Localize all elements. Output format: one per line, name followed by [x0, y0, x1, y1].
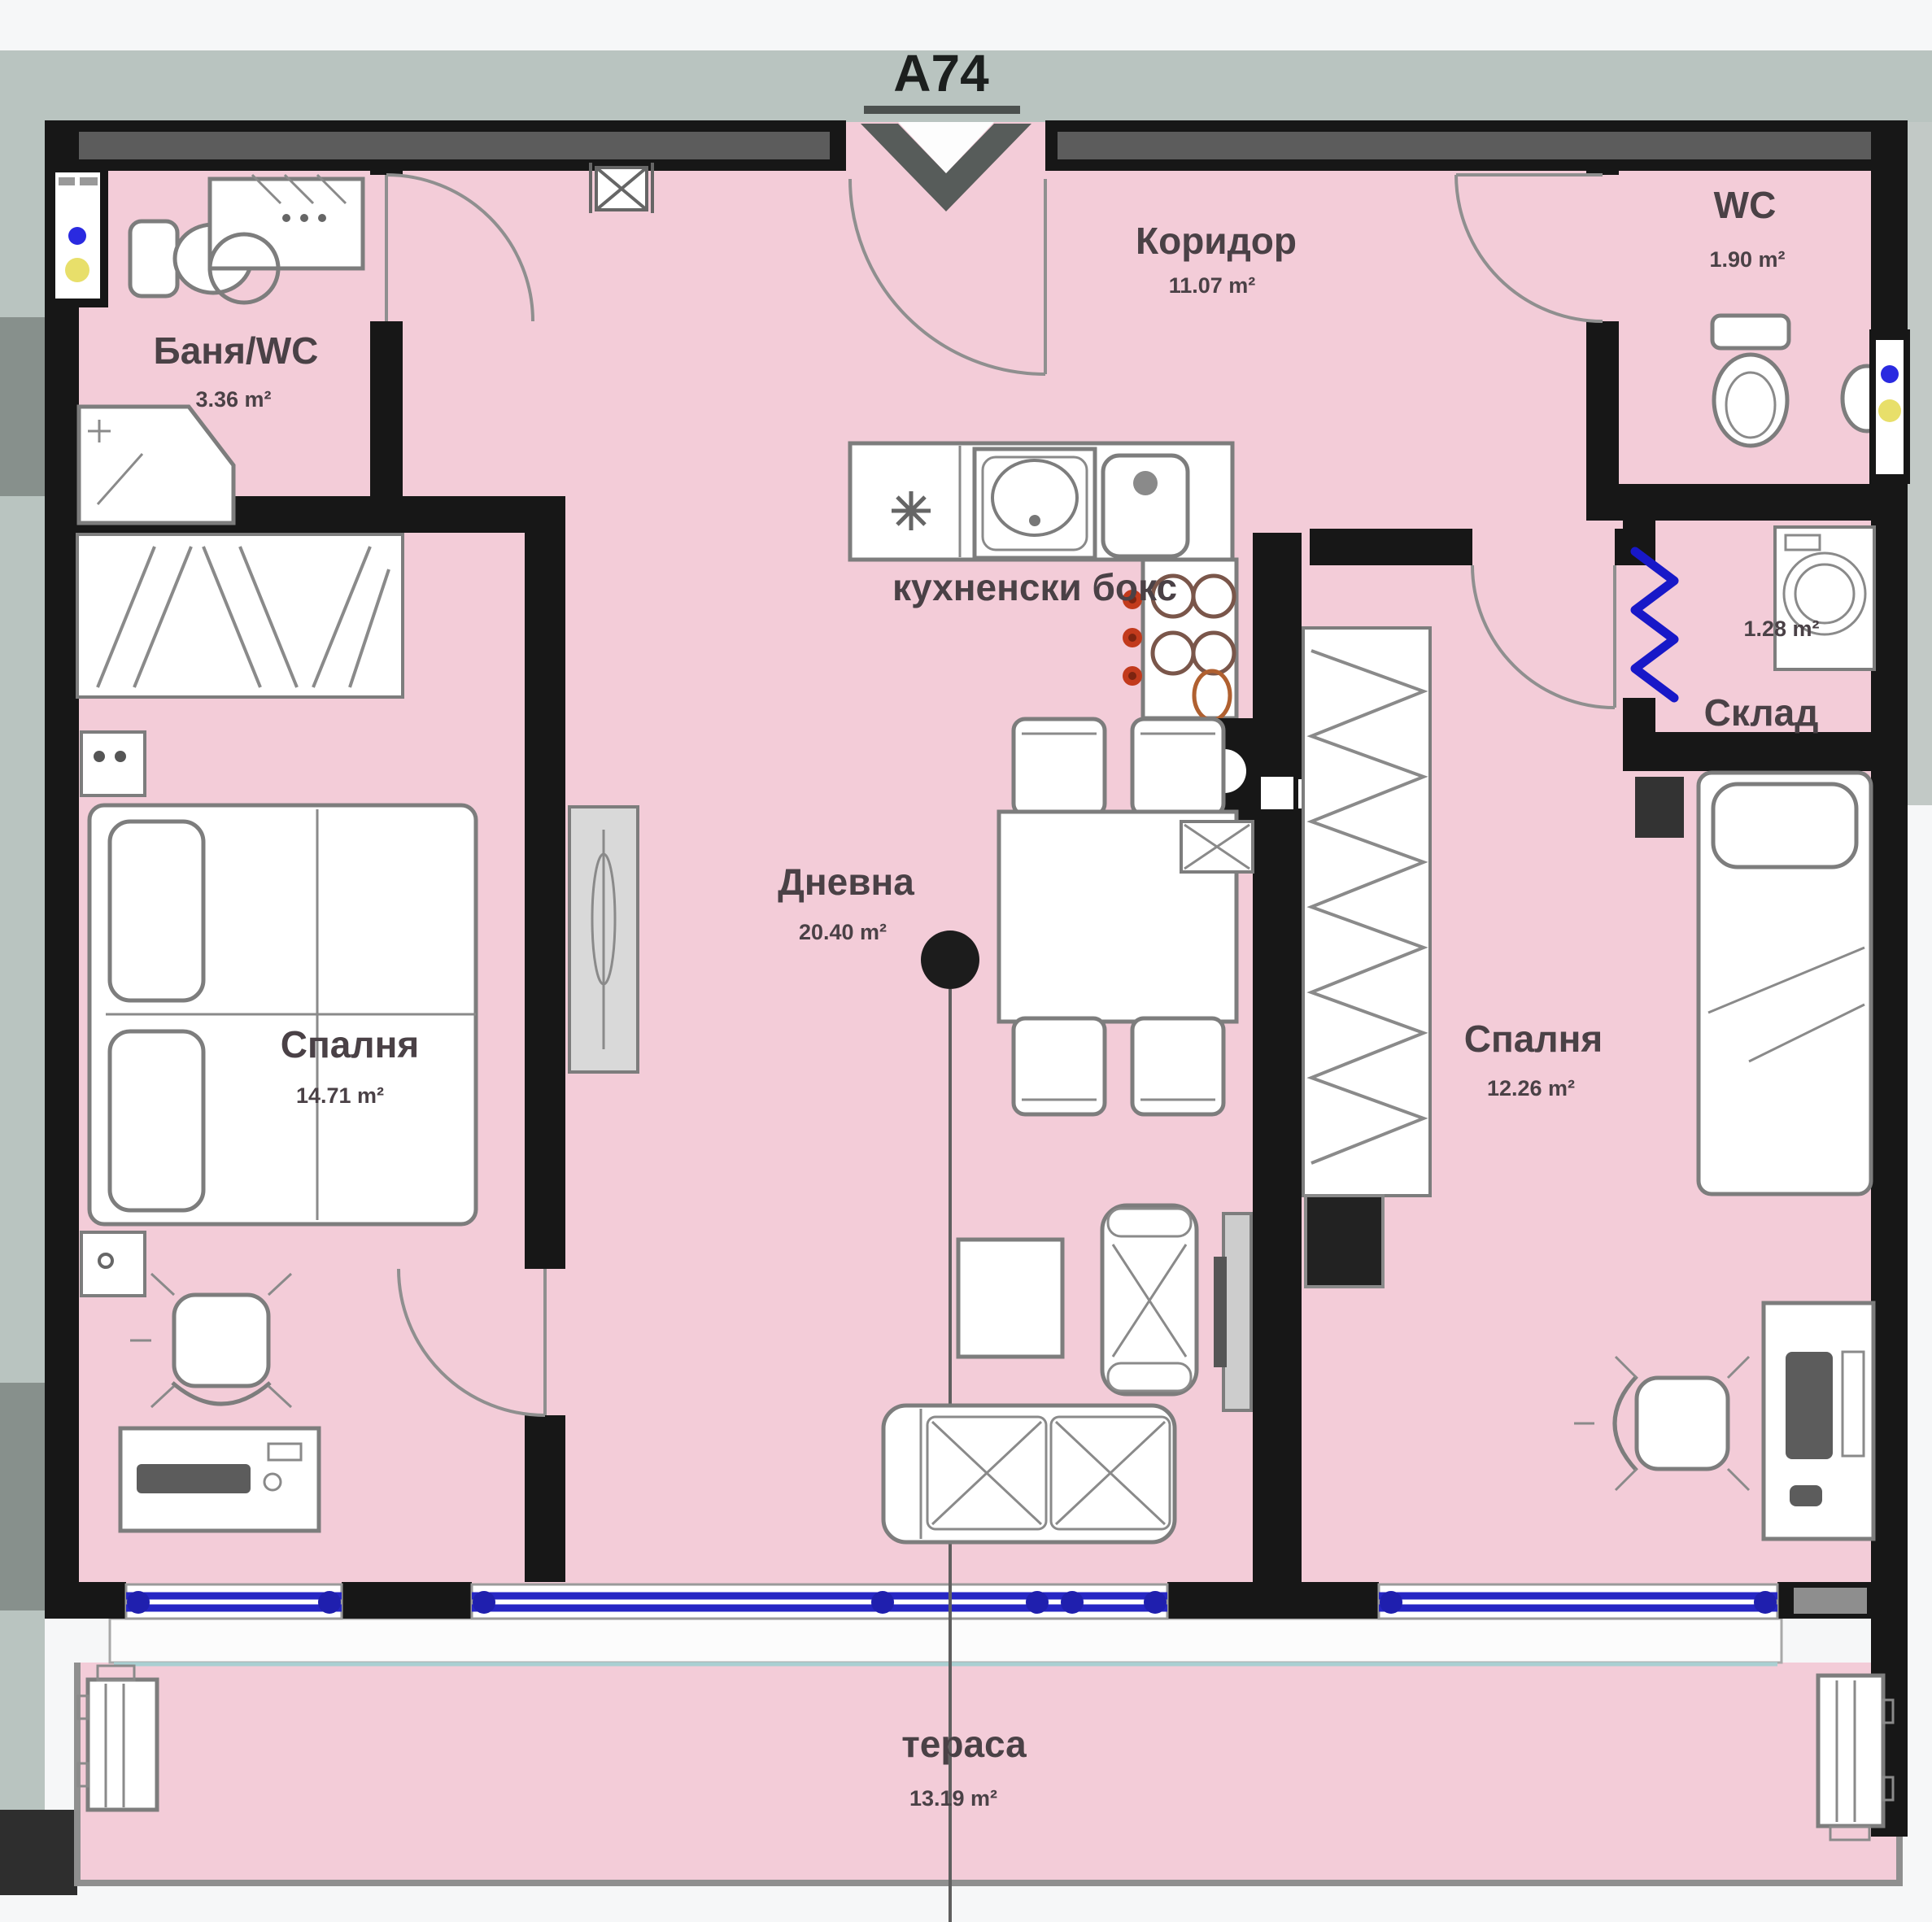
ac-unit-left: [78, 1666, 157, 1810]
unit-title: A74: [893, 44, 989, 102]
window-bedroom-right: [1379, 1584, 1777, 1619]
floor-plan: A74 Баня/WC 3.36 m² Коридор 11.07 m² WC …: [0, 0, 1932, 1922]
mirror-unit: [569, 807, 638, 1072]
vent-marker-icon: [591, 163, 652, 213]
title-underline: [864, 106, 1020, 114]
storage-fixtures: [1775, 527, 1874, 669]
terrace-floor: [77, 1663, 1899, 1884]
floor-plan-page: A74 Баня/WC 3.36 m² Коридор 11.07 m² WC …: [0, 0, 1932, 1922]
window-bedroom-left: [126, 1584, 342, 1619]
room-label-corridor: Коридор: [1136, 220, 1297, 262]
dining-chair: [1014, 719, 1105, 815]
armchair: [1102, 1205, 1197, 1394]
room-area-bedroom-left: 14.71 m²: [296, 1083, 384, 1108]
washing-machine: [1775, 527, 1874, 669]
room-label-wc: WC: [1714, 184, 1777, 226]
sofa: [883, 1406, 1175, 1542]
room-area-terrace: 13.19 m²: [909, 1786, 997, 1811]
desk-right: [1764, 1303, 1873, 1539]
room-area-wc: 1.90 m²: [1709, 247, 1785, 272]
room-area-storage: 1.28 m²: [1743, 617, 1819, 641]
room-area-corridor: 11.07 m²: [1169, 273, 1256, 298]
room-label-living: Дневна: [778, 861, 914, 903]
terrace-sill: [110, 1619, 1782, 1664]
room-label-terrace: тераса: [901, 1723, 1027, 1765]
desk-left: [120, 1428, 319, 1531]
wardrobe-right: [1303, 628, 1430, 1196]
ac-unit-right: [1818, 1676, 1893, 1840]
room-area-bathroom: 3.36 m²: [195, 387, 271, 412]
dresser-dark: [1306, 1196, 1383, 1287]
structural-column: [921, 930, 979, 989]
wc-shaft: [1869, 329, 1910, 484]
drain-icon: [892, 491, 931, 530]
wardrobe-left: [77, 534, 403, 697]
shaft-gas-icon: [65, 258, 89, 282]
nightstand-bottom: [81, 1232, 145, 1296]
room-label-bedroom-right: Спалня: [1464, 1018, 1603, 1060]
room-area-bedroom-right: 12.26 m²: [1487, 1076, 1575, 1100]
bathroom-shaft: [47, 163, 108, 307]
kitchen-label: кухненски бокс: [892, 566, 1177, 608]
dining-chair: [1014, 1018, 1105, 1114]
toilet-wc: [1712, 316, 1789, 446]
nightstand-top: [81, 732, 145, 795]
serving-stand: [1181, 822, 1253, 872]
nightstand-right: [1635, 777, 1684, 838]
room-label-storage: Склад: [1704, 691, 1819, 734]
dining-chair: [1132, 1018, 1223, 1114]
room-label-bathroom: Баня/WC: [154, 329, 319, 372]
room-area-living: 20.40 m²: [799, 920, 887, 944]
coffee-table: [958, 1240, 1062, 1357]
dining-chair: [1132, 719, 1223, 815]
window-living: [472, 1584, 1167, 1619]
room-label-bedroom-left: Спалня: [281, 1023, 419, 1066]
shaft-water-icon: [68, 227, 86, 245]
double-bed: [89, 805, 476, 1224]
single-bed: [1699, 773, 1871, 1194]
